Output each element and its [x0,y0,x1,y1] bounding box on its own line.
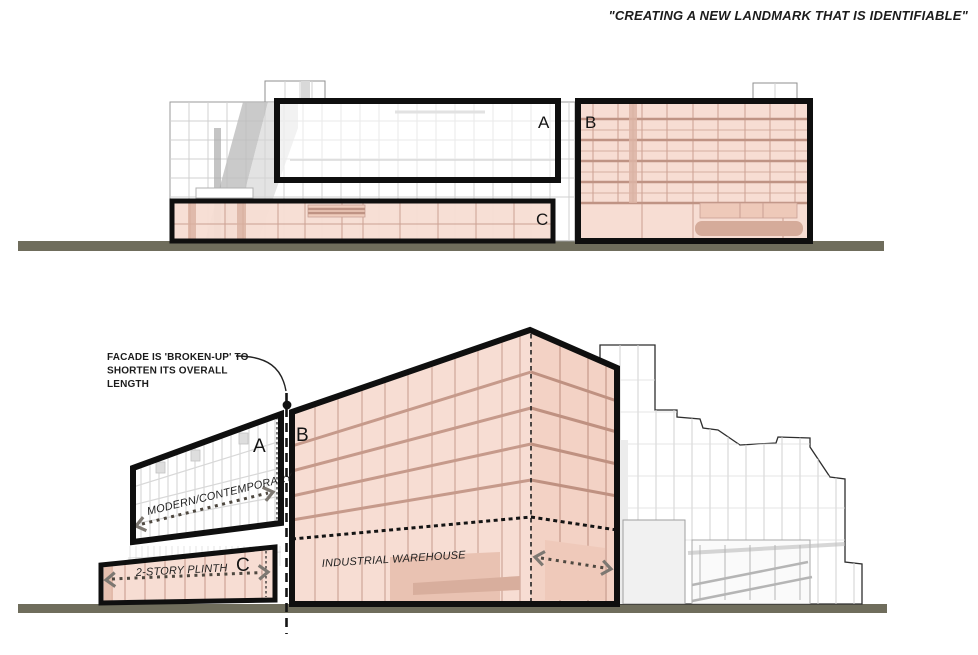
context-building-wireframe [600,340,862,604]
label-b-elevation: B [585,113,596,132]
massing-box-c-perspective: 2-STORY PLINTH C [101,540,275,606]
massing-box-b-elevation: B [578,101,810,241]
title-quote: "CREATING A NEW LANDMARK THAT IS IDENTIF… [608,8,968,23]
massing-box-a-perspective: MODERN/CONTEMPORARY A [133,408,294,548]
label-c-elevation: C [536,210,548,229]
label-b-perspective: B [296,425,309,446]
architectural-diagram-page: "CREATING A NEW LANDMARK THAT IS IDENTIF… [0,0,978,655]
annotation-line-3: LENGTH [107,379,149,390]
annotation-line-2: SHORTEN ITS OVERALL [107,366,228,377]
massing-box-b-perspective: INDUSTRIAL WAREHOUSE B [292,330,617,604]
perspective-view: INDUSTRIAL WAREHOUSE B [18,330,887,634]
elevation-view: C A [18,81,884,251]
label-a-perspective: A [253,436,266,457]
leader-dot [283,401,292,410]
label-c-perspective: C [236,555,250,576]
annotation-line-1: FACADE IS 'BROKEN-UP' TO [107,352,249,363]
label-a-elevation: A [538,113,550,132]
massing-box-a-elevation: A [277,101,558,180]
annotation-text: FACADE IS 'BROKEN-UP' TO SHORTEN ITS OVE… [107,352,249,390]
massing-box-c-elevation: C [172,201,553,241]
architectural-diagram: "CREATING A NEW LANDMARK THAT IS IDENTIF… [0,0,978,655]
